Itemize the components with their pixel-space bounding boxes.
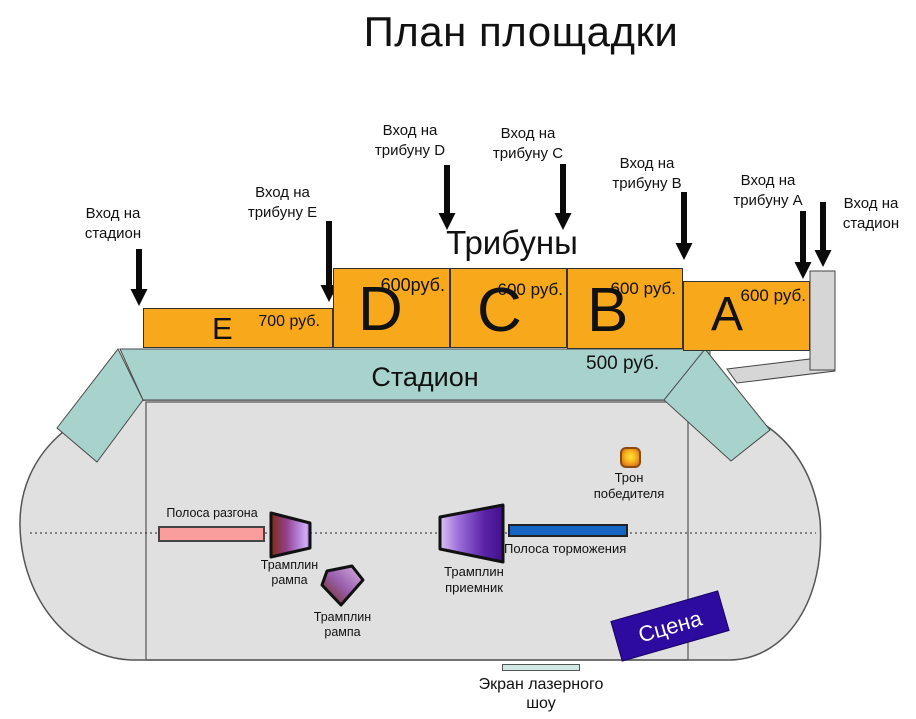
receiver-label-line2: приемник — [445, 580, 503, 595]
ramp-label-line1: Трамплин — [314, 610, 371, 624]
laser-screen — [502, 664, 580, 671]
tribune-price: 600 руб. — [740, 286, 806, 306]
entrance-label-line2: стадион — [68, 224, 158, 244]
throne-label: Трон победителя — [585, 470, 673, 501]
tribune-d: D 600руб. — [333, 268, 450, 348]
entrance-label-line1: Вход на — [480, 124, 576, 144]
laser-screen-label: Экран лазерного шоу — [468, 675, 614, 713]
ramp-label-line2: рампа — [324, 625, 360, 639]
brake-strip-label: Полоса торможения — [504, 541, 634, 557]
laser-screen-label-line2: шоу — [526, 695, 556, 712]
entrance-label-line1: Вход на — [832, 194, 910, 214]
entrance-label-line2: трибуну C — [480, 144, 576, 164]
receiver-label-line1: Трамплин — [444, 564, 504, 579]
tribune-letter: A — [711, 291, 743, 339]
standing-price: 500 руб. — [586, 353, 666, 375]
tribune-c: C 600 руб. — [450, 268, 567, 348]
laser-screen-label-line1: Экран лазерного — [479, 676, 604, 693]
entrance-label-line1: Вход на — [68, 204, 158, 224]
entrance-label-line2: стадион — [832, 214, 910, 234]
throne-icon — [620, 447, 641, 468]
entrance-label-tribune-d: Вход на трибуну D — [362, 121, 458, 161]
ramp-label-line2: рампа — [271, 573, 307, 587]
arrow-entrance-stadium-right — [815, 202, 832, 267]
ramp-label-line1: Трамплин — [261, 558, 318, 572]
arrow-entrance-stadium-left — [131, 249, 148, 306]
run-strip — [158, 526, 265, 542]
entrance-label-line2: трибуну B — [599, 174, 695, 194]
tribune-a: A 600 руб. — [683, 281, 810, 351]
tribunes-heading: Трибуны — [432, 224, 592, 262]
tribune-price: 600руб. — [381, 275, 445, 296]
entrance-label-line2: трибуну D — [362, 141, 458, 161]
entrance-label-line1: Вход на — [599, 154, 695, 174]
tribune-price: 600 руб. — [497, 280, 563, 300]
plan-drawing — [0, 0, 916, 719]
entrance-label-stadium-right: Вход на стадион — [832, 194, 910, 234]
walkway-bar — [810, 271, 835, 370]
entrance-label-tribune-c: Вход на трибуну C — [480, 124, 576, 164]
stadium-label: Стадион — [360, 362, 490, 393]
entrance-label-line1: Вход на — [720, 171, 816, 191]
tribune-price: 600 руб. — [610, 279, 676, 299]
entrance-label-tribune-e: Вход на трибуну E — [235, 183, 330, 223]
ramp-small-label: Трамплин рампа — [305, 610, 380, 639]
arrow-entrance-tribune-a — [795, 211, 812, 279]
venue-plan: План площадки Вход на стадион Вход на тр… — [0, 0, 916, 719]
arrow-entrance-tribune-b — [676, 192, 693, 260]
entrance-label-stadium-left: Вход на стадион — [68, 204, 158, 244]
tribune-letter: E — [212, 313, 233, 344]
entrance-label-line1: Вход на — [362, 121, 458, 141]
receiver-label: Трамплин приемник — [436, 564, 512, 595]
arrow-entrance-tribune-d — [439, 165, 456, 230]
entrance-label-tribune-b: Вход на трибуну B — [599, 154, 695, 194]
ramp-label: Трамплин рампа — [252, 558, 327, 587]
run-strip-label: Полоса разгона — [162, 506, 262, 521]
tribune-b: B 600 руб. — [567, 268, 683, 349]
entrance-label-line2: трибуну A — [720, 191, 816, 211]
entrance-label-line1: Вход на — [235, 183, 330, 203]
throne-label-line1: Трон — [615, 470, 644, 485]
entrance-label-line2: трибуну E — [235, 203, 330, 223]
tribune-e: E 700 руб. — [143, 308, 333, 348]
page-title: План площадки — [301, 8, 741, 56]
entrance-label-tribune-a: Вход на трибуну A — [720, 171, 816, 211]
throne-label-line2: победителя — [594, 486, 665, 501]
tribune-price: 700 руб. — [258, 313, 320, 331]
arrow-entrance-tribune-c — [555, 164, 572, 230]
brake-strip — [508, 524, 628, 537]
